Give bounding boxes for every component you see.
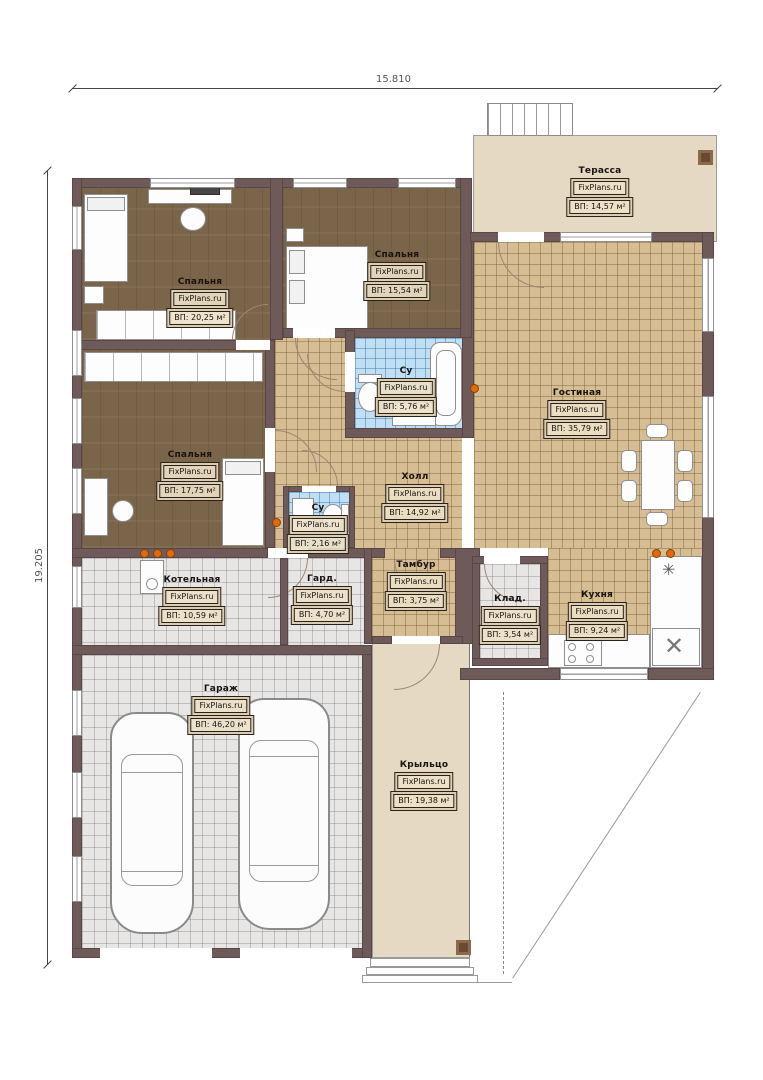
room-area: ВП: 4,70 м² [294, 608, 350, 622]
vent-mark-icon [153, 549, 162, 558]
vent-mark-icon [140, 549, 149, 558]
car-rear-window [250, 865, 318, 866]
room-area: ВП: 2,16 м² [290, 537, 346, 551]
room-label-garage: Гараж FixPlans.ru ВП: 46,20 м² [190, 684, 251, 732]
door-opening [498, 232, 544, 242]
room-area: ВП: 15,54 м² [366, 284, 427, 298]
office-chair [180, 207, 206, 231]
room-name: Холл [401, 472, 428, 482]
wall [364, 548, 372, 644]
wall [648, 668, 714, 680]
car-windshield [122, 772, 182, 773]
dimension-label-left: 19.205 [34, 548, 45, 583]
car-roof [121, 754, 183, 886]
office-chair [112, 500, 134, 522]
watermark: FixPlans.ru [388, 487, 441, 501]
watermark: FixPlans.ru [379, 381, 432, 395]
room-name: Гараж [204, 684, 238, 694]
roof-overhang-line [512, 692, 701, 978]
wall [345, 428, 472, 438]
window [72, 330, 82, 376]
desk [84, 478, 108, 536]
boiler-dial [146, 578, 158, 590]
door-opening [392, 636, 440, 644]
room-name: Крыльцо [400, 760, 448, 770]
door-opening [302, 486, 336, 492]
wall [460, 178, 472, 338]
chair [621, 450, 637, 472]
vent-mark-icon [470, 384, 479, 393]
window [560, 232, 652, 242]
dining-table [641, 440, 675, 510]
window [72, 856, 82, 902]
window [72, 398, 82, 444]
vent-mark-icon [652, 549, 661, 558]
door-opening [484, 556, 520, 564]
room-name: Спальня [178, 277, 223, 287]
room-name: Тамбур [396, 560, 435, 570]
room-label-living: Гостиная FixPlans.ru ВП: 35,79 м² [546, 388, 607, 436]
wall [472, 556, 480, 666]
room-area: ВП: 3,54 м² [482, 628, 538, 642]
door-opening [293, 328, 335, 338]
watermark: FixPlans.ru [194, 699, 247, 713]
room-name: Гостиная [553, 388, 601, 398]
wall [540, 556, 548, 666]
door-opening [345, 352, 355, 392]
bathtub-inner [436, 350, 456, 416]
room-area: ВП: 10,59 м² [161, 609, 222, 623]
car [238, 698, 330, 930]
watermark: FixPlans.ru [397, 775, 450, 789]
room-name: Гард. [307, 574, 337, 584]
wall [283, 486, 289, 548]
vent-mark-icon [272, 518, 281, 527]
window [72, 566, 82, 608]
watermark: FixPlans.ru [163, 465, 216, 479]
floor-plan-sheet: 15.810 19.205 [0, 0, 763, 1080]
watermark: FixPlans.ru [573, 181, 626, 195]
wall [349, 486, 355, 548]
dimension-label-top: 15.810 [376, 74, 411, 85]
room-label-bedroom1: Спальня FixPlans.ru ВП: 20,25 м² [169, 277, 230, 325]
room-name: Терасса [579, 166, 622, 176]
room-area: ВП: 19,38 м² [393, 794, 454, 808]
room-name: Су [400, 366, 413, 376]
nightstand [84, 286, 104, 304]
column-mark-icon [456, 940, 471, 955]
room-label-vestibule: Тамбур FixPlans.ru ВП: 3,75 м² [388, 560, 444, 608]
chair [621, 480, 637, 502]
car [110, 712, 194, 934]
window [72, 690, 82, 736]
room-label-wardrobe: Гард. FixPlans.ru ВП: 4,70 м² [294, 574, 350, 622]
pillow [87, 197, 125, 211]
porch-steps [370, 958, 470, 967]
car-rear-window [122, 871, 182, 872]
refrigerator-x-icon: ✕ [664, 634, 684, 658]
sink-icon: ✳ [662, 562, 675, 578]
watermark: FixPlans.ru [291, 518, 344, 532]
pillow [289, 250, 305, 274]
vent-mark-icon [166, 549, 175, 558]
room-name: Спальня [375, 250, 420, 260]
porch-steps [366, 967, 474, 975]
car-roof [249, 740, 319, 882]
dimension-line-left [47, 170, 48, 965]
door-opening [236, 340, 270, 350]
dimension-line-top [72, 88, 718, 89]
room-label-bedroom3: Спальня FixPlans.ru ВП: 17,75 м² [159, 450, 220, 498]
window [72, 772, 82, 818]
window [72, 206, 82, 250]
room-label-kitchen: Кухня FixPlans.ru ВП: 9,24 м² [569, 590, 625, 638]
window [560, 668, 648, 680]
window [702, 396, 714, 518]
wall [372, 636, 392, 644]
room-name: Спальня [168, 450, 213, 460]
room-area: ВП: 14,57 м² [569, 200, 630, 214]
garage-door-opening [100, 948, 212, 958]
room-label-terrace: Терасса FixPlans.ru ВП: 14,57 м² [569, 166, 630, 214]
watermark: FixPlans.ru [295, 589, 348, 603]
watermark: FixPlans.ru [483, 609, 536, 623]
window [293, 178, 347, 188]
watermark: FixPlans.ru [173, 292, 226, 306]
watermark: FixPlans.ru [570, 605, 623, 619]
room-label-bathroom1: Су FixPlans.ru ВП: 5,76 м² [378, 366, 434, 414]
room-label-bathroom2: Су FixPlans.ru ВП: 2,16 м² [290, 503, 346, 551]
terrace-stairs [487, 103, 573, 136]
room-area: ВП: 17,75 м² [159, 484, 220, 498]
window [150, 178, 235, 188]
chair [646, 512, 668, 526]
room-label-porch: Крыльцо FixPlans.ru ВП: 19,38 м² [393, 760, 454, 808]
room-area: ВП: 35,79 м² [546, 422, 607, 436]
pillow [289, 280, 305, 304]
room-label-boiler: Котельная FixPlans.ru ВП: 10,59 м² [161, 575, 222, 623]
wardrobe [84, 352, 263, 382]
pillow [225, 461, 261, 475]
wall [460, 668, 560, 680]
wall [472, 658, 548, 666]
window [72, 468, 82, 514]
wall [280, 558, 288, 645]
wall [72, 645, 372, 655]
burner [568, 643, 576, 651]
car-windshield [250, 756, 318, 757]
garage-door-opening [240, 948, 352, 958]
room-label-storage: Клад. FixPlans.ru ВП: 3,54 м² [482, 594, 538, 642]
window [702, 258, 714, 332]
wall [362, 645, 372, 958]
watermark: FixPlans.ru [370, 265, 423, 279]
room-name: Клад. [494, 594, 526, 604]
column-mark-icon [698, 150, 713, 165]
room-area: ВП: 3,75 м² [388, 594, 444, 608]
watermark: FixPlans.ru [389, 575, 442, 589]
room-name: Кухня [581, 590, 613, 600]
wall [270, 178, 283, 340]
porch-steps [362, 975, 478, 983]
window [398, 178, 456, 188]
room-area: ВП: 14,92 м² [384, 506, 445, 520]
chair [646, 424, 668, 438]
wall [440, 636, 463, 644]
room-label-hall: Холл FixPlans.ru ВП: 14,92 м² [384, 472, 445, 520]
watermark: FixPlans.ru [550, 403, 603, 417]
room-area: ВП: 9,24 м² [569, 624, 625, 638]
chair [677, 480, 693, 502]
roof-overhang-line [503, 692, 504, 974]
door-opening [265, 428, 275, 472]
room-name: Су [312, 503, 325, 513]
chair [677, 450, 693, 472]
burner [586, 655, 594, 663]
room-area: ВП: 5,76 м² [378, 400, 434, 414]
burner [568, 655, 576, 663]
room-area: ВП: 20,25 м² [169, 311, 230, 325]
burner [586, 643, 594, 651]
room-label-bedroom2: Спальня FixPlans.ru ВП: 15,54 м² [366, 250, 427, 298]
room-area: ВП: 46,20 м² [190, 718, 251, 732]
nightstand [286, 228, 304, 242]
watermark: FixPlans.ru [165, 590, 218, 604]
vent-mark-icon [666, 549, 675, 558]
room-name: Котельная [163, 575, 220, 585]
